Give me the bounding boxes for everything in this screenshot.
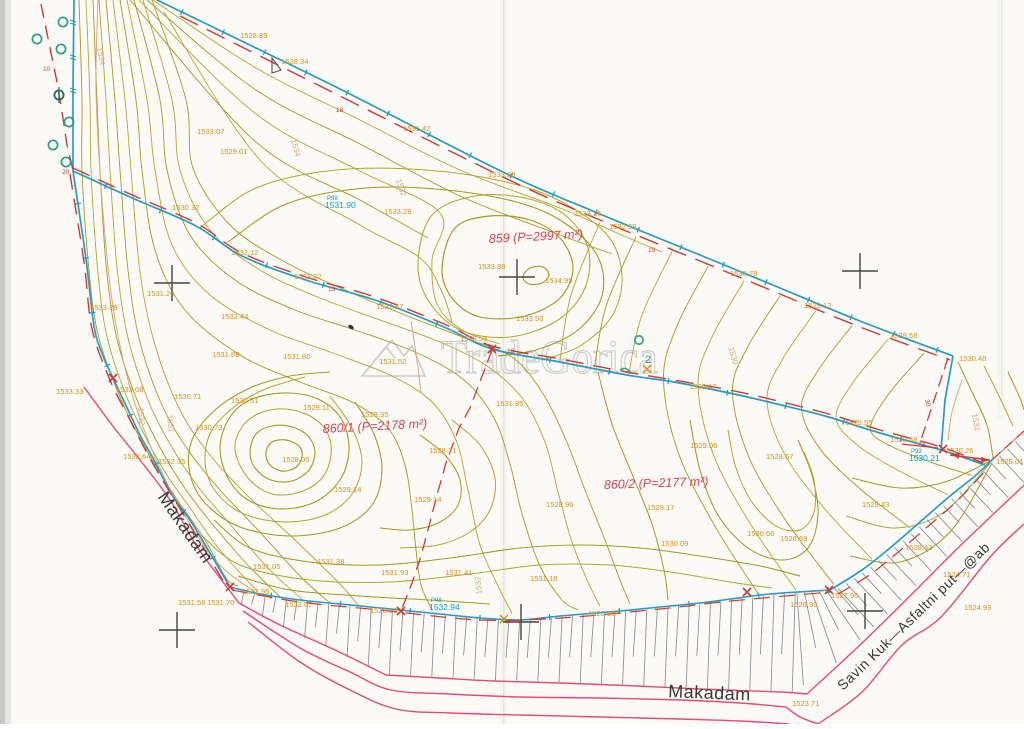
svg-text:1531.05: 1531.05: [253, 562, 280, 571]
svg-text:1533.08: 1533.08: [116, 385, 143, 394]
svg-text:1528.67: 1528.67: [766, 452, 793, 461]
svg-text:1527.90: 1527.90: [831, 591, 858, 600]
svg-text:1533.28: 1533.28: [384, 207, 411, 216]
svg-text:1533.33: 1533.33: [56, 387, 83, 396]
svg-text:1533.22: 1533.22: [294, 272, 321, 281]
svg-text:1531: 1531: [165, 414, 176, 433]
svg-text:1529.55: 1529.55: [845, 418, 872, 427]
svg-text:1532.07: 1532.07: [285, 600, 312, 609]
svg-text:1533.50: 1533.50: [516, 314, 543, 323]
svg-text:1530.51: 1530.51: [231, 396, 258, 405]
svg-text:1523.71: 1523.71: [792, 699, 819, 708]
svg-text:1531.70: 1531.70: [207, 598, 234, 607]
svg-text:1530.48: 1530.48: [959, 354, 986, 363]
svg-text:1531.93: 1531.93: [381, 568, 408, 577]
svg-text:18: 18: [336, 107, 344, 114]
svg-text:1526.05: 1526.05: [588, 609, 615, 618]
svg-text:1529.01: 1529.01: [220, 147, 247, 156]
svg-text:P93: P93: [911, 449, 922, 455]
svg-text:1533.35: 1533.35: [574, 209, 601, 218]
svg-text:1530.71: 1530.71: [174, 392, 201, 401]
svg-text:1530.48: 1530.48: [890, 435, 917, 444]
svg-text:1531.56: 1531.56: [178, 598, 205, 607]
svg-text:19: 19: [648, 247, 656, 254]
svg-text:1531.26: 1531.26: [147, 289, 174, 298]
svg-text:1529.14: 1529.14: [414, 495, 441, 504]
svg-text:1529.58: 1529.58: [890, 331, 917, 340]
svg-text:1532.12: 1532.12: [231, 248, 258, 257]
svg-text:1534.95: 1534.95: [545, 276, 572, 285]
svg-text:1530.66: 1530.66: [747, 529, 774, 538]
svg-text:1533.08: 1533.08: [488, 170, 515, 179]
svg-text:1529.17: 1529.17: [647, 503, 674, 512]
svg-text:1529.43: 1529.43: [862, 500, 889, 509]
svg-text:1528.96: 1528.96: [546, 500, 573, 509]
svg-text:20: 20: [62, 169, 70, 176]
svg-text:1528.89: 1528.89: [240, 31, 267, 40]
svg-text:1531.88: 1531.88: [212, 350, 239, 359]
svg-text:13: 13: [328, 286, 336, 293]
svg-text:1524.93: 1524.93: [964, 603, 991, 612]
svg-text:1530.47: 1530.47: [689, 382, 716, 391]
svg-text:23: 23: [918, 441, 926, 448]
svg-text:1533.53: 1533.53: [460, 334, 487, 343]
svg-text:1532: 1532: [473, 576, 484, 595]
svg-text:1531.80: 1531.80: [283, 352, 310, 361]
svg-text:1530.78: 1530.78: [730, 269, 757, 278]
svg-text:1530.32: 1530.32: [172, 203, 199, 212]
svg-text:1533.88: 1533.88: [478, 262, 505, 271]
svg-text:1529.14: 1529.14: [334, 485, 361, 494]
svg-text:1528.34: 1528.34: [281, 57, 308, 66]
svg-text:1528.43: 1528.43: [905, 543, 932, 552]
svg-text:10: 10: [43, 66, 51, 73]
svg-text:1529.01: 1529.01: [996, 457, 1023, 466]
svg-text:1532.99: 1532.99: [609, 222, 636, 231]
svg-text:1530.73: 1530.73: [195, 423, 222, 432]
svg-text:1529.12: 1529.12: [804, 301, 831, 310]
svg-text:2: 2: [645, 354, 651, 366]
svg-text:1533.29: 1533.29: [90, 303, 117, 312]
svg-text:1531.95: 1531.95: [496, 399, 523, 408]
svg-text:1531.52: 1531.52: [379, 357, 406, 366]
svg-text:1529.06: 1529.06: [690, 441, 717, 450]
svg-text:1532.35: 1532.35: [158, 457, 185, 466]
svg-text:1526.92: 1526.92: [790, 600, 817, 609]
svg-text:13: 13: [507, 348, 515, 355]
svg-text:P99: P99: [327, 196, 338, 202]
svg-text:1528.68: 1528.68: [780, 534, 807, 543]
svg-text:1532.44: 1532.44: [221, 312, 248, 321]
svg-text:1531.18: 1531.18: [530, 574, 557, 583]
svg-text:1531.38: 1531.38: [317, 557, 344, 566]
svg-text:1533.07: 1533.07: [197, 127, 224, 136]
svg-text:1531.42: 1531.42: [403, 124, 430, 133]
svg-text:1528.00: 1528.00: [282, 455, 309, 464]
svg-text:1529.11: 1529.11: [303, 403, 330, 412]
svg-text:1532.64: 1532.64: [123, 452, 150, 461]
svg-text:P98: P98: [431, 598, 442, 604]
svg-text:1529.35: 1529.35: [361, 410, 388, 419]
svg-text:Makadam: Makadam: [668, 681, 751, 705]
svg-text:1528.13: 1528.13: [370, 606, 397, 615]
svg-text:1530.26: 1530.26: [946, 446, 973, 455]
svg-text:1531.41: 1531.41: [445, 568, 472, 577]
svg-text:1530.09: 1530.09: [661, 539, 688, 548]
svg-text:1532.57: 1532.57: [376, 302, 403, 311]
svg-text:1531.95: 1531.95: [242, 587, 269, 596]
svg-text:1532: 1532: [136, 407, 147, 426]
svg-text:1528.71: 1528.71: [429, 446, 456, 455]
